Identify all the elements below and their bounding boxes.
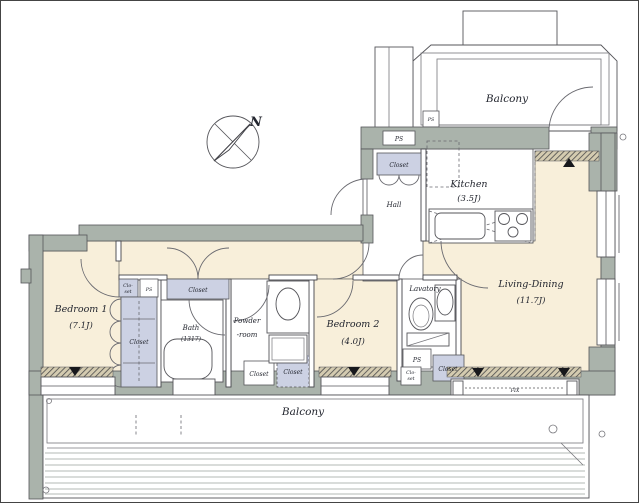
sill-hatch [535,151,599,161]
bedroom2-size-label: (4.0J) [341,336,365,347]
hall-label: Hall [386,201,402,209]
laundry-space [269,335,307,363]
bath-closet-label: Closet [188,287,208,294]
utility-column [375,47,413,131]
lavatory-label: Lavatory [408,285,441,293]
kitchen-label: Kitchen [449,179,487,190]
balcony-top-outline [413,45,617,131]
bedroom2-label: Bedroom 2 [326,319,380,330]
entrance-door-arc [331,179,367,215]
bedroom1-size-label: (7.1J) [69,320,93,331]
kitchen-sink [435,213,485,239]
balcony-bottom-label: Balcony [281,406,325,418]
ps-nook-label: PS [427,117,435,123]
powder-washbasin [276,288,300,320]
bedroom1-ps-label: PS [145,287,153,293]
balcony-top-bump [463,11,557,47]
powder-closet-left-label: Closet [249,371,269,378]
bedroom1-clo-label: Clo- [123,283,133,289]
balcony-top [375,11,617,131]
bathtub [164,339,212,379]
lavatory-set-label: set [407,376,414,382]
bath-label: Bath [182,324,200,332]
floor-plan-drawing: N Balcony Kitchen (3.5J) Hall Living-Din… [1,1,638,502]
powder-closet-right-label: Closet [283,369,303,376]
fix-window-label: FIX [510,388,520,394]
lavatory-clo-label: Clo- [406,370,416,376]
hall-closet-label: Closet [389,162,409,169]
powder-room-label-1: Powder [233,317,261,325]
corridor-floor [119,241,367,279]
ps-top-label: PS [394,136,403,143]
balcony-top-label: Balcony [485,93,529,105]
lavatory-closet-label: Closet [438,366,458,373]
kitchen-size-label: (3.5J) [457,193,481,204]
floor-plan-page: N Balcony Kitchen (3.5J) Hall Living-Din… [0,0,639,503]
bedroom1-label: Bedroom 1 [54,304,108,315]
bath-window-nook [173,379,215,397]
kitchen-stove [495,211,531,241]
bath-size-label: (1317) [181,336,202,343]
bedroom1-set-label: set [124,289,131,295]
powder-room-label-2: -room [237,331,258,339]
lavatory-ps-label: PS [412,357,421,364]
toilet-bowl [409,298,433,330]
living-dining-size-label: (11.7J) [517,295,546,306]
living-dining-label: Living-Dining [497,279,563,290]
bedroom1-closet-label: Closet [129,339,149,346]
compass-icon: N [207,115,263,168]
compass-north-label: N [249,115,263,130]
drain-cap [599,431,605,437]
lavatory-closet-small [401,367,421,385]
